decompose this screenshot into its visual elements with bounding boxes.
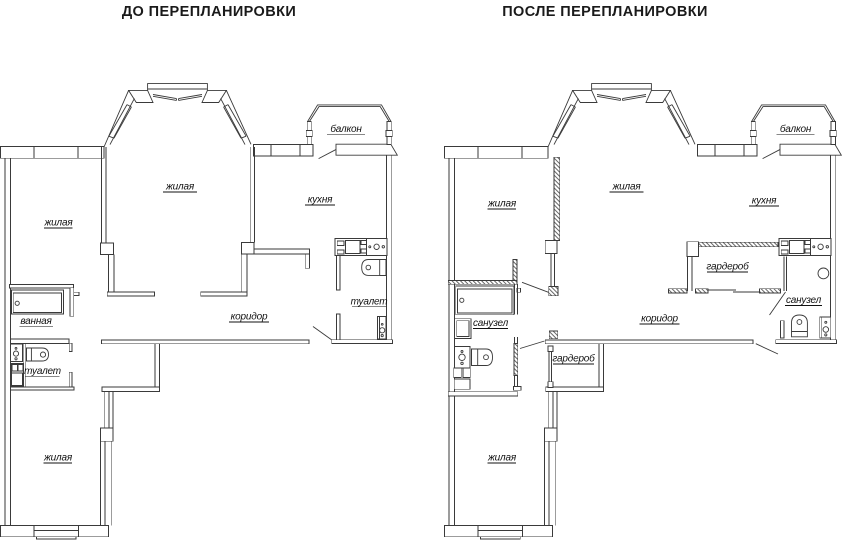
svg-text:кухня: кухня [308,195,333,206]
svg-text:гардероб: гардероб [552,353,595,365]
svg-text:санузел: санузел [473,318,509,329]
svg-text:ДО ПЕРЕПЛАНИРОВКИ: ДО ПЕРЕПЛАНИРОВКИ [122,4,296,20]
svg-text:балкон: балкон [330,123,362,135]
svg-text:жилая: жилая [165,182,195,193]
svg-text:коридор: коридор [231,312,268,323]
svg-text:ПОСЛЕ ПЕРЕПЛАНИРОВКИ: ПОСЛЕ ПЕРЕПЛАНИРОВКИ [502,4,708,20]
svg-text:кухня: кухня [752,196,777,207]
svg-text:туалет: туалет [24,366,61,377]
svg-text:жилая: жилая [487,453,517,464]
svg-text:жилая: жилая [487,199,517,210]
svg-text:туалет: туалет [351,297,388,308]
svg-text:жилая: жилая [43,453,73,464]
svg-text:гардероб: гардероб [706,261,749,273]
svg-text:жилая: жилая [612,182,642,193]
svg-text:балкон: балкон [780,123,812,135]
svg-text:коридор: коридор [641,314,678,325]
svg-text:жилая: жилая [44,218,74,229]
svg-text:санузел: санузел [786,295,822,306]
svg-text:ванная: ванная [20,316,52,327]
